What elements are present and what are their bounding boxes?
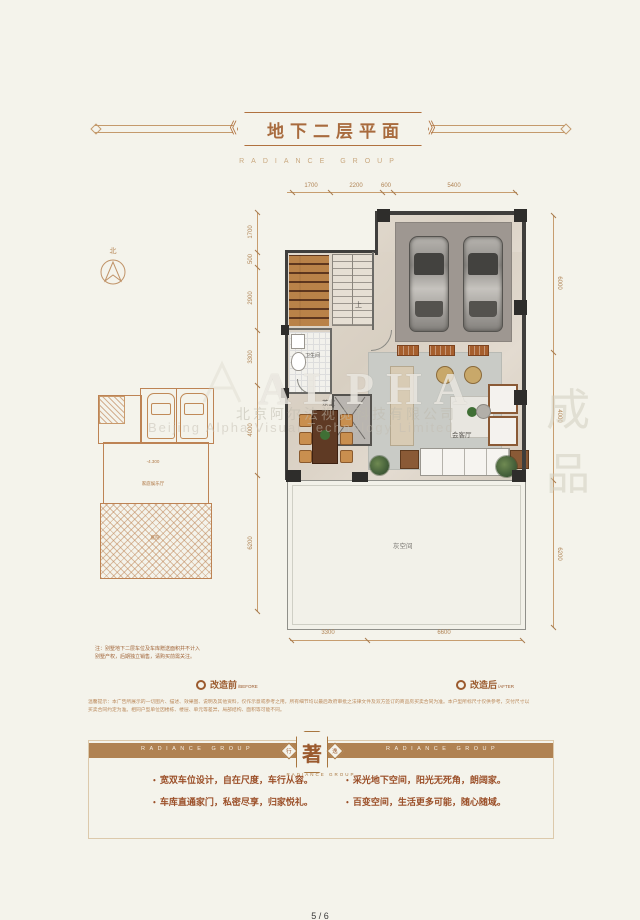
dim-chain-bottom: 3300 6600	[290, 630, 522, 644]
dining-chair	[299, 450, 312, 463]
grey-space-label: 灰空间	[393, 540, 413, 550]
door-mat	[468, 345, 489, 356]
round-side-table	[464, 366, 482, 384]
wall-bath-right	[330, 328, 332, 394]
wall-right	[522, 211, 526, 482]
pillar	[377, 209, 390, 222]
dim-label: 4000	[556, 409, 562, 422]
dim-label: 5400	[447, 183, 460, 189]
legend-before-marker-icon	[196, 680, 206, 690]
wall-bath-top	[288, 328, 332, 330]
legend-after: 改造后 /AFTER	[456, 678, 514, 691]
page-number: 5 / 6	[0, 911, 640, 920]
dining-chair	[340, 414, 353, 427]
bp-room-label: 家庭娱乐厅	[142, 481, 165, 487]
disclaimer: 温馨提示：本广告所展示的一切图片、描述、效果图、说明及其他资料，仅作示意或参考之…	[88, 699, 554, 714]
dim-label: 3300	[321, 630, 334, 636]
plan-note: 注：别墅地下二层车位及车库赠送面积并不计入 别墅产权，后期独立销售，请购买前需关…	[95, 645, 200, 661]
feature-item: 宽双车位设计，自在尺度，车行从容。	[153, 773, 313, 786]
disclaimer-line1: 温馨提示：本广告所展示的一切图片、描述、效果图、说明及其他资料，仅作示意或参考之…	[88, 699, 554, 707]
header-chevron-left-icon: 《	[222, 117, 237, 138]
bp-closet-hatch	[99, 396, 125, 424]
dining-chair	[299, 414, 312, 427]
legend-after-cn: 改造后	[470, 678, 497, 691]
feature-item: 百变空间，生活更多可能，随心随域。	[346, 795, 506, 808]
dim-label: 6200	[248, 536, 254, 549]
car-right	[463, 236, 503, 332]
page-title: 地下二层平面	[261, 117, 405, 142]
wall-left	[285, 250, 288, 480]
dim-label: 2200	[349, 183, 362, 189]
dim-label: 2900	[248, 291, 254, 304]
table-plant	[320, 430, 330, 440]
header-deco-line-left	[95, 125, 233, 133]
door-mat	[429, 345, 455, 356]
armchair	[488, 416, 518, 446]
badge-left-char: 行	[286, 747, 292, 755]
page-title-box: 地下二层平面	[237, 112, 429, 146]
dim-label: 600	[381, 183, 391, 189]
header-deco-line-right	[431, 125, 565, 133]
header-subtitle: RADIANCE GROUP	[0, 158, 640, 165]
badge-chevron-right-icon: 》	[343, 742, 354, 758]
disclaimer-line2: 买卖合同约定为准。相同户型单位因楼栋、楼层、单元等差异，局部结构、面积等可能不同…	[88, 707, 554, 715]
bathroom-label: 卫生间	[305, 352, 320, 359]
grey-space-inner-border	[292, 485, 521, 625]
dim-label: 4000	[248, 423, 254, 436]
dim-label: 6200	[556, 547, 562, 560]
wardrobe-cabinet	[289, 255, 329, 326]
dim-label: 500	[248, 254, 254, 264]
bp-terrace-label: 庭院	[151, 535, 160, 541]
round-side-table	[436, 366, 454, 384]
legend-after-marker-icon	[456, 680, 466, 690]
badge-chevron-left-icon: 《	[269, 742, 280, 758]
wall-bath-bottom	[288, 392, 332, 394]
plan-note-line2: 别墅产权，后期独立销售，请购买前需关注。	[95, 653, 200, 661]
living-room-label: 会客厅	[452, 429, 472, 439]
pillar	[514, 209, 527, 222]
pillar	[514, 300, 527, 315]
dim-label: 1700	[304, 183, 317, 189]
console-table	[390, 366, 414, 446]
header-chevron-right-icon: 》	[428, 117, 443, 138]
dining-table	[312, 410, 338, 464]
dining-chair	[340, 432, 353, 445]
toilet	[291, 352, 306, 371]
sofa-side-table	[400, 450, 419, 469]
legend-after-en: /AFTER	[498, 684, 514, 689]
legend-before: 改造前 /BEFORE	[196, 678, 258, 691]
features-box: RADIANCE GROUP RADIANCE GROUP 《 行 著 逸 》 …	[88, 740, 554, 839]
dining-chair	[340, 450, 353, 463]
bathroom-sink	[291, 334, 305, 349]
compass-icon	[98, 256, 128, 288]
feature-item: 采光地下空间，阳光无死角，朗阔家。	[346, 773, 506, 786]
pillar	[281, 325, 289, 335]
before-plan: -4.300 家庭娱乐厅 庭院	[95, 385, 220, 580]
dim-chain-left: 1700 500 2900 3300 4000 6200	[248, 212, 262, 612]
car-left	[409, 236, 449, 332]
banner-group-right: RADIANCE GROUP	[386, 746, 499, 752]
wall-stair-right	[372, 252, 374, 330]
compass: 北	[98, 246, 128, 288]
bp-car	[180, 393, 208, 439]
wall-wing-top	[285, 250, 377, 253]
dim-label: 1700	[248, 225, 254, 238]
round-stool	[476, 404, 491, 419]
bp-car	[147, 393, 175, 439]
legend-before-cn: 改造前	[210, 678, 237, 691]
pillar	[514, 390, 527, 405]
dim-label: 3300	[248, 350, 254, 363]
badge-main-char: 著	[302, 738, 322, 767]
plant	[370, 456, 389, 475]
dim-chain-top: 1700 2200 600 5400	[287, 183, 517, 197]
pillar	[281, 388, 289, 398]
badge-core: 著	[296, 731, 328, 773]
bp-main-room	[103, 442, 209, 504]
dim-chain-right: 6000 4000 6200	[549, 215, 563, 628]
bp-terrace-hatch	[100, 503, 212, 579]
pillar	[352, 472, 368, 482]
brochure-page: 《 》 地下二层平面 RADIANCE GROUP 北 灰空间 上	[0, 0, 640, 920]
staircase-rail	[352, 255, 353, 325]
door-mat	[397, 345, 419, 356]
bp-elevation-label: -4.300	[147, 459, 160, 464]
feature-item: 车库直通家门，私密尽享，归家悦礼。	[153, 795, 313, 808]
dining-chair	[299, 432, 312, 445]
pillar	[512, 470, 526, 482]
legend-before-en: /BEFORE	[238, 684, 258, 689]
staircase	[332, 254, 374, 326]
compass-north-label: 北	[98, 246, 128, 256]
grey-space	[287, 480, 526, 630]
tea-room-label: 茶室	[322, 397, 335, 407]
badge-right-char: 逸	[332, 747, 338, 755]
dim-label: 6000	[556, 276, 562, 289]
wall-top	[375, 211, 526, 215]
stairs-up-label: 上	[355, 300, 362, 310]
banner-group-left: RADIANCE GROUP	[141, 746, 254, 752]
pillar	[286, 470, 301, 482]
dim-label: 6600	[437, 630, 450, 636]
plan-note-line1: 注：别墅地下二层车位及车库赠送面积并不计入	[95, 645, 200, 653]
